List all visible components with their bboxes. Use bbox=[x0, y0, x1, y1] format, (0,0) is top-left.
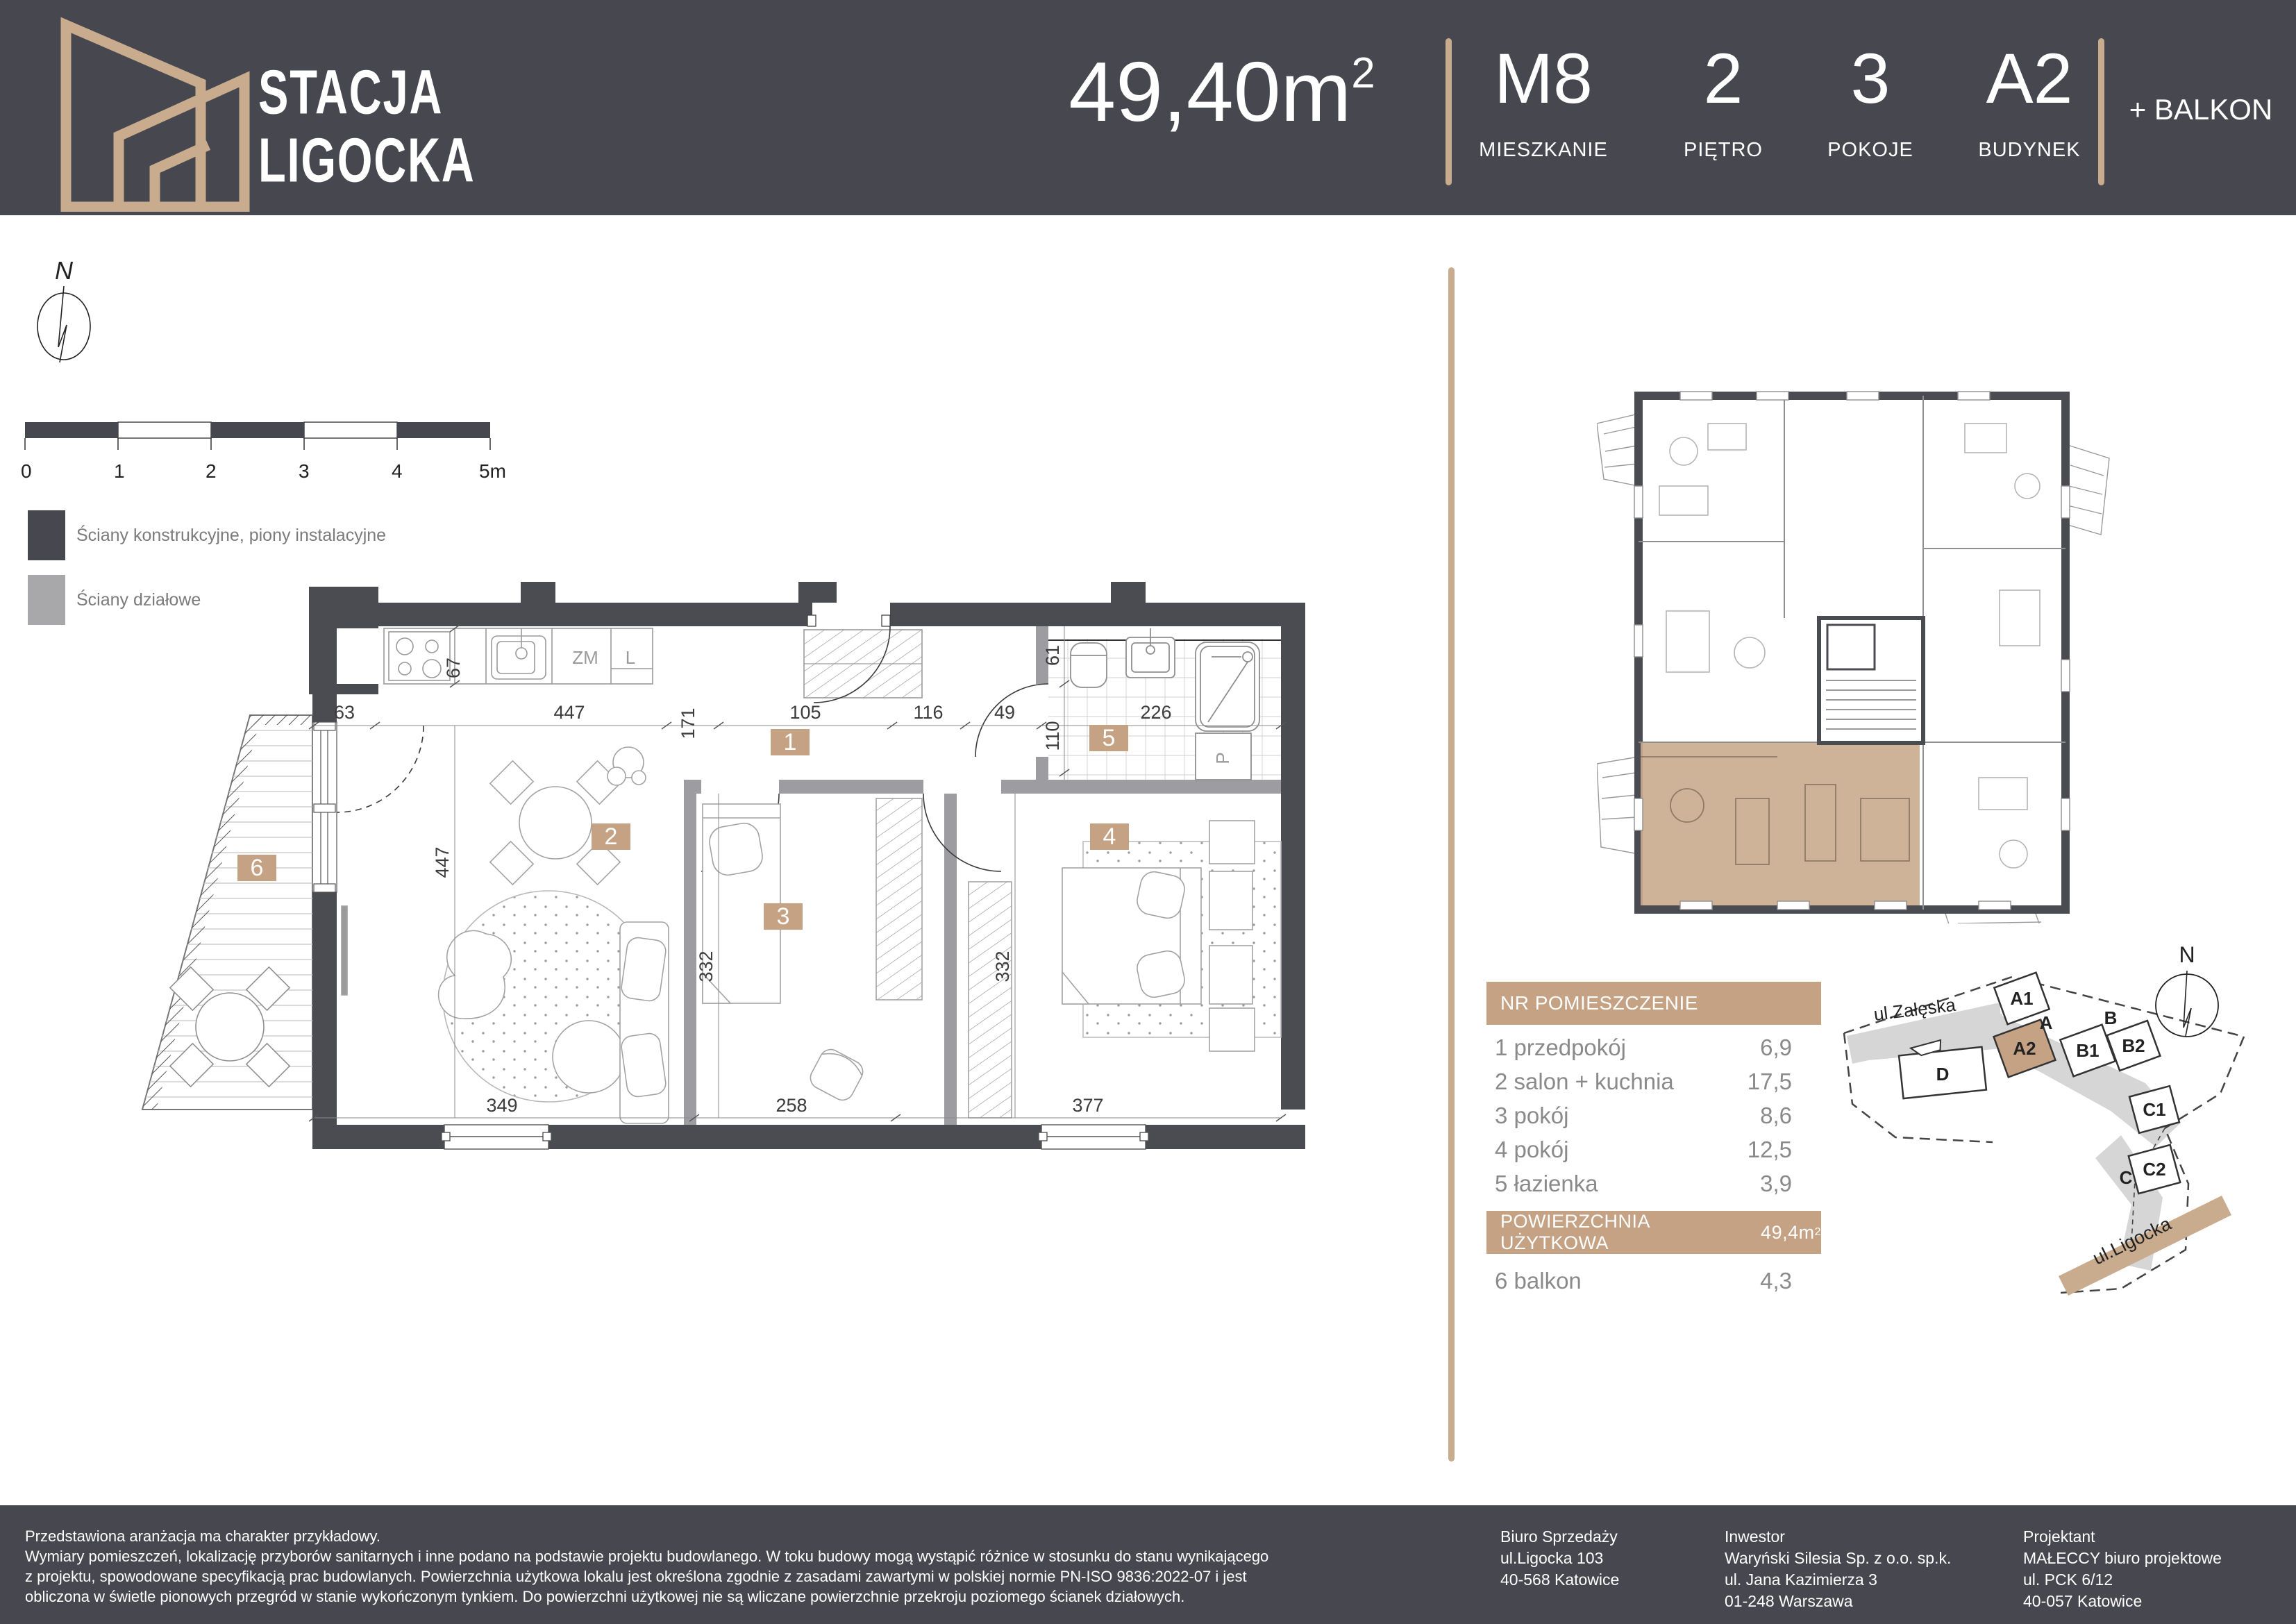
row-name: pokój bbox=[1514, 1103, 1569, 1128]
office-title: Biuro Sprzedaży bbox=[1500, 1526, 1619, 1548]
stat-rooms-value: 3 bbox=[1808, 40, 1933, 117]
office-title: Inwestor bbox=[1725, 1526, 1951, 1548]
office-line: 40-568 Katowice bbox=[1500, 1569, 1619, 1591]
dim-116: 116 bbox=[913, 702, 943, 723]
stat-building: A2 BUDYNEK bbox=[1960, 40, 2099, 162]
row-nr: 6 bbox=[1495, 1268, 1507, 1294]
row-area: 12,5 bbox=[1748, 1137, 1792, 1163]
content-divider bbox=[1448, 267, 1455, 1462]
dim-49: 49 bbox=[994, 702, 1015, 723]
stat-apartment: M8 MIESZKANIE bbox=[1474, 40, 1613, 162]
room-tag-4: 4 bbox=[1103, 823, 1116, 850]
row-area: 4,3 bbox=[1760, 1268, 1792, 1294]
armchair bbox=[807, 1046, 866, 1104]
disclaimer-line: Przedstawiona aranżacja ma charakter prz… bbox=[25, 1526, 1386, 1546]
dim-105: 105 bbox=[789, 702, 821, 723]
disclaimer-text: Przedstawiona aranżacja ma charakter prz… bbox=[25, 1526, 1386, 1607]
building-floor-overview bbox=[1597, 375, 2152, 923]
room-table: NR POMIESZCZENIE 1 przedpokój 6,9 2 salo… bbox=[1486, 982, 1821, 1298]
room-table-header: NR POMIESZCZENIE bbox=[1486, 982, 1821, 1025]
area-sup: 2 bbox=[1351, 49, 1375, 97]
footer-bar: Przedstawiona aranżacja ma charakter prz… bbox=[0, 1505, 2296, 1624]
north-label: N bbox=[55, 256, 74, 285]
office-line: Waryński Silesia Sp. z o.o. sp.k. bbox=[1725, 1548, 1951, 1569]
partition-wall-swatch bbox=[28, 575, 65, 625]
structural-wall-swatch bbox=[28, 510, 65, 560]
row-nr: 2 bbox=[1495, 1069, 1507, 1094]
row-nr: 1 bbox=[1495, 1035, 1507, 1060]
table-row: 4 pokój 12,5 bbox=[1486, 1132, 1821, 1166]
building-b2-label: B2 bbox=[2122, 1035, 2145, 1056]
table-row: 1 przedpokój 6,9 bbox=[1486, 1030, 1821, 1064]
sales-office-block: Biuro Sprzedaży ul.Ligocka 103 40-568 Ka… bbox=[1500, 1526, 1619, 1591]
stair-core bbox=[1819, 618, 1923, 743]
row-nr: 5 bbox=[1495, 1171, 1507, 1196]
table-row: 3 pokój 8,6 bbox=[1486, 1098, 1821, 1132]
wardrobe bbox=[876, 798, 922, 1000]
table-row: 2 salon + kuchnia 17,5 bbox=[1486, 1064, 1821, 1098]
stat-building-label: BUDYNEK bbox=[1960, 139, 2099, 162]
building-a2-label: A2 bbox=[2013, 1038, 2036, 1059]
header-bar: STACJA LIGOCKA 49,40m2 M8 MIESZKANIE 2 P… bbox=[0, 0, 2296, 215]
table-row: 5 łazienka 3,9 bbox=[1486, 1166, 1821, 1200]
wardrobe bbox=[969, 882, 1012, 1118]
office-line: ul. PCK 6/12 bbox=[2023, 1569, 2222, 1591]
scale-tick-4: 4 bbox=[392, 460, 403, 482]
nightstand bbox=[1209, 946, 1252, 1004]
office-title: Projektant bbox=[2023, 1526, 2222, 1548]
disclaimer-line: z projektu, spowodowane specyfikacją pra… bbox=[25, 1566, 1386, 1587]
nightstand bbox=[1209, 871, 1252, 930]
toilet-icon bbox=[1071, 643, 1107, 687]
dishwasher-label: ZM bbox=[572, 647, 598, 668]
room3-furniture bbox=[703, 798, 922, 1104]
office-line: ul.Ligocka 103 bbox=[1500, 1548, 1619, 1569]
scale-tick-0: 0 bbox=[21, 460, 32, 482]
highlighted-apartment bbox=[1641, 742, 1920, 905]
row-name: łazienka bbox=[1514, 1171, 1598, 1196]
dim-377: 377 bbox=[1072, 1095, 1103, 1116]
room-tag-3: 3 bbox=[777, 903, 790, 930]
wall-niche bbox=[337, 628, 378, 684]
row-area: 6,9 bbox=[1760, 1035, 1792, 1061]
dining-table-set bbox=[490, 761, 620, 885]
office-line: 01-248 Warszawa bbox=[1725, 1591, 1951, 1612]
dresser bbox=[1209, 1008, 1255, 1051]
balcony-row: 6 balkon 4,3 bbox=[1486, 1264, 1821, 1298]
hall-wardrobe bbox=[804, 630, 922, 698]
row-name: przedpokój bbox=[1514, 1035, 1626, 1060]
pillow bbox=[707, 821, 764, 877]
structural-wall-label: Ściany konstrukcyjne, piony instalacyjne bbox=[76, 526, 386, 546]
pouf bbox=[553, 1021, 625, 1093]
scale-tick-3: 3 bbox=[299, 460, 310, 482]
brand-line-2: LIGOCKA bbox=[258, 129, 476, 192]
building-c-label: C bbox=[2120, 1167, 2133, 1188]
bathtub-icon bbox=[1196, 642, 1259, 731]
row-name: pokój bbox=[1514, 1137, 1569, 1162]
site-north-label: N bbox=[2179, 942, 2195, 967]
tv-icon bbox=[342, 906, 347, 995]
scale-tick-2: 2 bbox=[206, 460, 217, 482]
office-line: ul. Jana Kazimierza 3 bbox=[1725, 1569, 1951, 1591]
usable-area-value: 49,4m bbox=[1761, 1222, 1815, 1244]
building-a-label: A bbox=[2040, 1012, 2053, 1033]
apartment-floor-plan: ZM L bbox=[125, 569, 1333, 1208]
dim-61: 61 bbox=[1042, 645, 1063, 666]
building-b-label: B bbox=[2104, 1007, 2118, 1028]
site-map: A1 A A2 B B1 B2 C C1 C2 D ul.Załęska ul.… bbox=[1833, 930, 2296, 1361]
apartment-card-page: STACJA LIGOCKA 49,40m2 M8 MIESZKANIE 2 P… bbox=[0, 0, 2296, 1624]
dim-332-b: 332 bbox=[992, 951, 1013, 982]
sofa bbox=[620, 922, 669, 1123]
row-name: salon + kuchnia bbox=[1514, 1069, 1674, 1094]
stove-icon bbox=[389, 632, 450, 680]
row-area: 8,6 bbox=[1760, 1103, 1792, 1129]
apartment-area-title: 49,40m2 bbox=[1034, 43, 1409, 140]
building-a1-label: A1 bbox=[2010, 988, 2033, 1009]
dim-171: 171 bbox=[678, 708, 698, 739]
brand-line-1: STACJA bbox=[258, 61, 443, 124]
stat-apartment-value: M8 bbox=[1474, 40, 1613, 117]
scale-bar: 0 1 2 3 4 5m bbox=[14, 413, 542, 489]
legend-structural-walls: Ściany konstrukcyjne, piony instalacyjne bbox=[28, 510, 386, 560]
dresser bbox=[1209, 821, 1255, 864]
balcony-area bbox=[142, 715, 312, 1110]
living-room-furniture bbox=[342, 747, 669, 1123]
balcony-flag: + BALKON bbox=[2107, 93, 2295, 126]
room-tag-5: 5 bbox=[1103, 725, 1116, 751]
office-line: 40-057 Katowice bbox=[2023, 1591, 2222, 1612]
stat-rooms-label: POKOJE bbox=[1808, 139, 1933, 162]
dim-226: 226 bbox=[1140, 702, 1171, 723]
stat-floor-value: 2 bbox=[1661, 40, 1786, 117]
usable-area-bar: POWIERZCHNIA UŻYTKOWA 49,4m2 bbox=[1486, 1211, 1821, 1254]
row-area: 17,5 bbox=[1748, 1069, 1792, 1095]
dim-67: 67 bbox=[443, 658, 464, 678]
stat-floor-label: PIĘTRO bbox=[1661, 139, 1786, 162]
kitchen-counter bbox=[384, 628, 653, 684]
stat-floor: 2 PIĘTRO bbox=[1661, 40, 1786, 162]
north-compass: N bbox=[21, 250, 118, 375]
washer-label: P bbox=[1212, 752, 1233, 764]
header-separator-right bbox=[2098, 38, 2104, 185]
row-nr: 3 bbox=[1495, 1103, 1507, 1128]
building-c2-label: C2 bbox=[2143, 1159, 2165, 1180]
dim-63: 63 bbox=[334, 702, 355, 723]
building-b1-label: B1 bbox=[2076, 1040, 2099, 1061]
building-d-label: D bbox=[1936, 1064, 1950, 1085]
room-tag-2: 2 bbox=[605, 823, 618, 850]
disclaimer-line: Wymiary pomieszczeń, lokalizację przybor… bbox=[25, 1546, 1386, 1566]
bathroom-sink-icon bbox=[1126, 628, 1175, 678]
dim-110: 110 bbox=[1042, 721, 1063, 751]
header-separator-left bbox=[1446, 38, 1452, 185]
stat-rooms: 3 POKOJE bbox=[1808, 40, 1933, 162]
dim-447-top: 447 bbox=[553, 702, 585, 723]
stat-apartment-label: MIESZKANIE bbox=[1474, 139, 1613, 162]
disclaimer-line: obliczona w świetle pionowych przegród w… bbox=[25, 1587, 1386, 1607]
office-line: MAŁECCY biuro projektowe bbox=[2023, 1548, 2222, 1569]
scale-tick-5: 5m bbox=[479, 460, 506, 482]
usable-area-sup: 2 bbox=[1815, 1226, 1821, 1239]
plant bbox=[607, 747, 646, 785]
usable-area-label: POWIERZCHNIA UŻYTKOWA bbox=[1500, 1211, 1750, 1254]
room-tag-6: 6 bbox=[251, 855, 264, 881]
dim-258: 258 bbox=[776, 1095, 807, 1116]
room-tag-1: 1 bbox=[784, 729, 797, 755]
stat-building-value: A2 bbox=[1960, 40, 2099, 117]
investor-block: Inwestor Waryński Silesia Sp. z o.o. sp.… bbox=[1725, 1526, 1951, 1612]
fridge-label: L bbox=[626, 647, 635, 668]
double-bed bbox=[1062, 868, 1201, 1004]
designer-block: Projektant MAŁECCY biuro projektowe ul. … bbox=[2023, 1526, 2222, 1612]
building-c1-label: C1 bbox=[2143, 1099, 2165, 1120]
compass-needle bbox=[58, 286, 67, 362]
dim-447-vert: 447 bbox=[432, 846, 453, 878]
row-nr: 4 bbox=[1495, 1137, 1507, 1162]
dim-349: 349 bbox=[486, 1095, 517, 1116]
dim-332-a: 332 bbox=[696, 951, 717, 982]
row-name: balkon bbox=[1514, 1268, 1582, 1294]
row-area: 3,9 bbox=[1760, 1171, 1792, 1197]
area-value: 49,40m bbox=[1069, 44, 1351, 139]
sink-icon bbox=[492, 628, 546, 679]
scale-tick-1: 1 bbox=[114, 460, 125, 482]
